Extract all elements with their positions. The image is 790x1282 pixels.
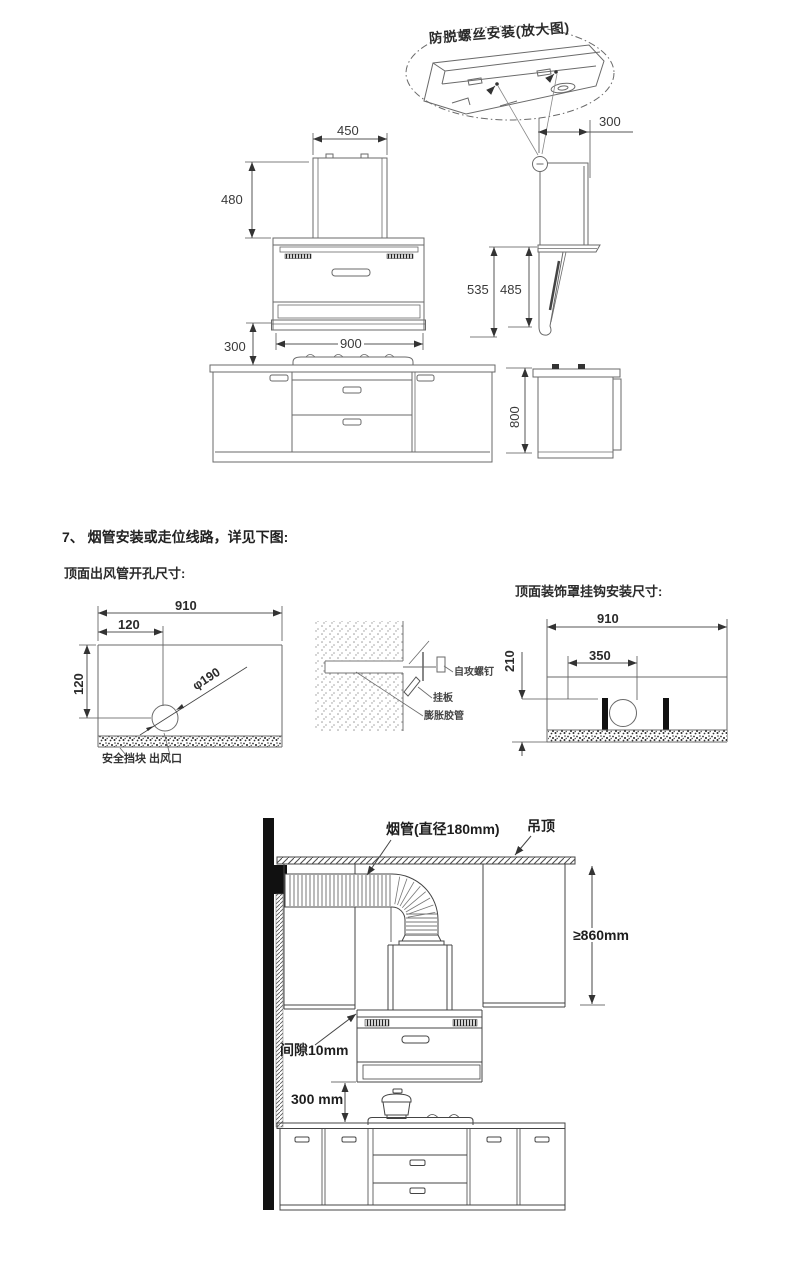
- label-gap: 间隙10mm: [280, 1043, 348, 1057]
- base-cabinet-front-view: [210, 355, 495, 463]
- dim-hook-height: 210: [503, 650, 516, 672]
- label-ceiling: 吊顶: [527, 819, 555, 833]
- dim-min-height: ≥860mm: [571, 928, 631, 942]
- label-hanging-plate: 挂板: [433, 694, 453, 704]
- hood-front-view: [245, 133, 426, 365]
- step7-heading: 7、 烟管安装或走位线路，详见下图:: [62, 530, 288, 544]
- technical-drawing: [0, 0, 790, 1282]
- dim-vent-width: 910: [175, 599, 197, 612]
- dim-height-outer: 535: [467, 283, 489, 296]
- dim-chimney-height: 480: [221, 193, 243, 206]
- vent-hole-title: 顶面出风管开孔尺寸:: [64, 567, 185, 580]
- dim-vent-offset-y: 120: [72, 673, 85, 695]
- label-self-tapping-screw: 自攻螺钉: [454, 668, 494, 678]
- base-cabinet-side-view: [506, 364, 621, 458]
- dim-body-width: 900: [338, 337, 364, 350]
- hook-mount-diagram: [512, 619, 727, 756]
- installation-diagram: [263, 818, 605, 1210]
- dim-side-depth: 300: [599, 115, 621, 128]
- dim-cabinet-height: 800: [508, 406, 521, 428]
- dim-hook-width: 910: [597, 612, 619, 625]
- dim-hood-clearance: 300 mm: [291, 1092, 343, 1106]
- dim-vent-offset-x: 120: [118, 618, 140, 631]
- dim-height-inner: 485: [500, 283, 522, 296]
- dim-hook-span: 350: [589, 649, 611, 662]
- label-expansion-anchor: 膨胀胶管: [424, 712, 464, 722]
- vent-hole-diagram: [79, 606, 282, 755]
- label-duct: 烟管(直径180mm): [386, 822, 500, 836]
- installation-manual-page: 防脱螺丝安装(放大图) 300 450 480 535 485 300 900 …: [0, 0, 790, 1282]
- hood-side-view: [470, 118, 633, 337]
- vent-hole-bottom-labels: 安全挡块 出风口: [102, 754, 182, 765]
- dim-clearance: 300: [224, 340, 246, 353]
- dim-chimney-width: 450: [337, 124, 359, 137]
- hook-mount-title: 顶面装饰罩挂钩安装尺寸:: [515, 585, 662, 598]
